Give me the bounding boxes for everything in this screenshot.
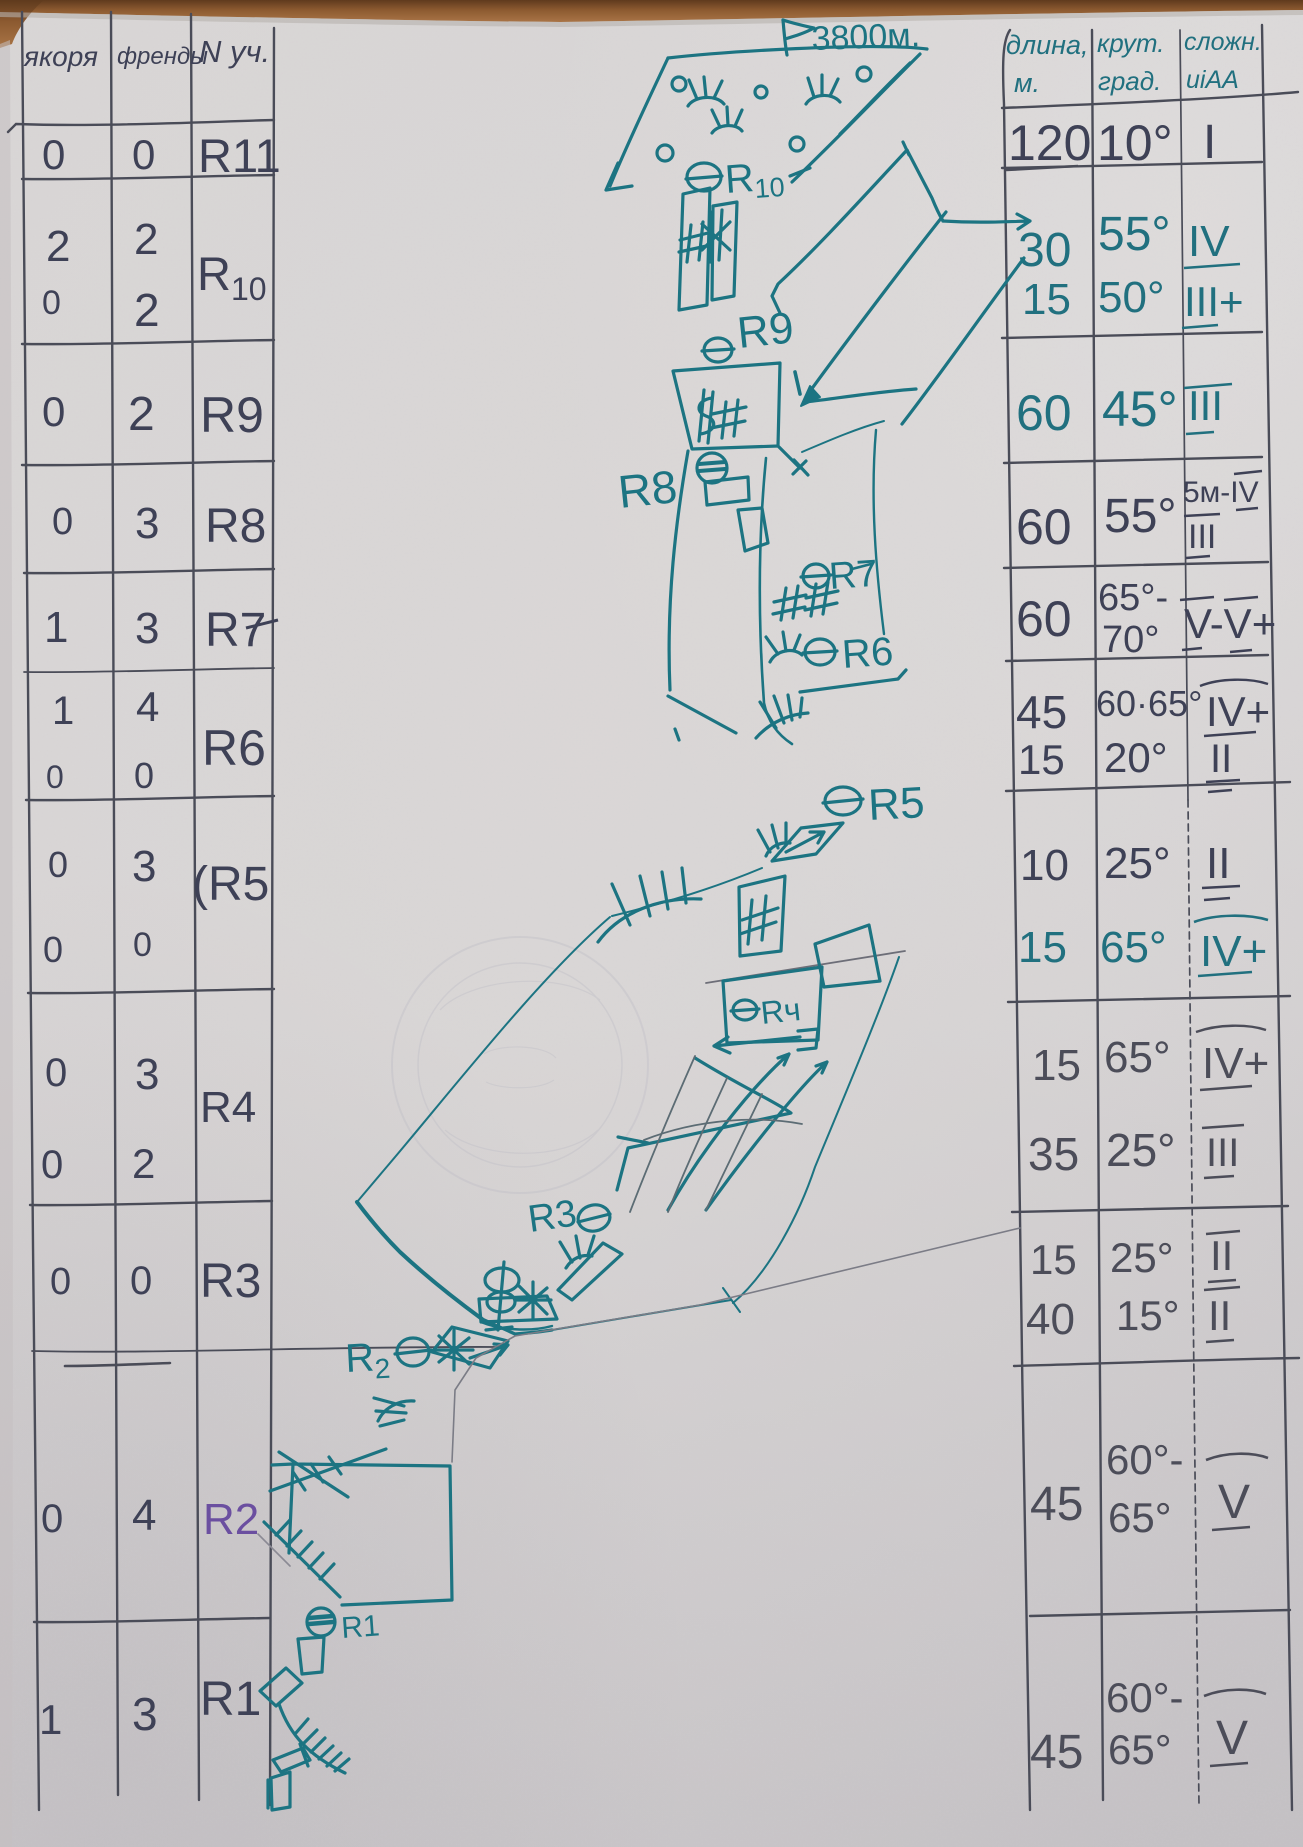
svg-text:крут.: крут.	[1097, 28, 1164, 58]
svg-text:II: II	[1210, 1232, 1233, 1279]
svg-text:IV: IV	[1188, 217, 1230, 266]
svg-text:60°-: 60°-	[1106, 1436, 1184, 1483]
svg-text:60: 60	[1016, 591, 1072, 647]
svg-text:3: 3	[132, 842, 156, 891]
svg-text:0: 0	[133, 926, 152, 964]
svg-text:длина,: длина,	[1006, 30, 1089, 60]
svg-text:R8: R8	[205, 500, 266, 553]
svg-text:0: 0	[43, 929, 63, 970]
svg-text:II: II	[1208, 1292, 1231, 1339]
svg-text:0: 0	[41, 1497, 63, 1541]
svg-text:R6: R6	[202, 720, 266, 776]
svg-text:2: 2	[134, 284, 160, 336]
svg-text:I: I	[1203, 116, 1216, 169]
svg-text:R2: R2	[203, 1495, 259, 1544]
svg-text:5м-IV: 5м-IV	[1183, 476, 1259, 509]
svg-text:25°: 25°	[1104, 839, 1171, 888]
svg-text:15: 15	[1022, 275, 1071, 324]
svg-text:60·65°: 60·65°	[1096, 683, 1202, 724]
svg-text:III: III	[1188, 382, 1223, 429]
svg-text:50°: 50°	[1098, 273, 1165, 322]
svg-text:0: 0	[50, 1261, 71, 1303]
svg-text:10°: 10°	[1097, 115, 1173, 171]
svg-text:15: 15	[1018, 923, 1067, 972]
svg-text:V: V	[1218, 1476, 1250, 1529]
svg-text:0: 0	[132, 131, 155, 178]
svg-text:60°-: 60°-	[1106, 1674, 1184, 1721]
svg-text:якоря: якоря	[23, 41, 98, 72]
svg-text:0: 0	[45, 1051, 67, 1095]
svg-text:40: 40	[1026, 1295, 1075, 1344]
svg-text:55°: 55°	[1098, 208, 1171, 261]
svg-text:0: 0	[42, 131, 65, 178]
svg-text:65°: 65°	[1100, 923, 1167, 972]
svg-text:3: 3	[135, 1050, 159, 1099]
svg-text:0: 0	[52, 501, 73, 543]
svg-text:35: 35	[1028, 1128, 1079, 1180]
svg-text:45°: 45°	[1102, 381, 1178, 437]
svg-text:70°: 70°	[1102, 619, 1159, 661]
svg-text:R1: R1	[340, 1609, 381, 1645]
svg-text:65°-: 65°-	[1098, 577, 1168, 619]
svg-text:0: 0	[41, 1143, 63, 1187]
svg-text:4: 4	[132, 1491, 156, 1540]
svg-text:45: 45	[1030, 1726, 1083, 1779]
svg-text:Rч: Rч	[759, 991, 802, 1031]
svg-text:III+: III+	[1184, 278, 1244, 325]
svg-text:25°: 25°	[1110, 1234, 1174, 1281]
svg-text:0: 0	[46, 759, 64, 795]
svg-text:R3: R3	[525, 1193, 579, 1241]
svg-text:25°: 25°	[1106, 1124, 1176, 1176]
svg-text:2: 2	[132, 1140, 155, 1187]
svg-text:0: 0	[42, 388, 65, 435]
svg-text:3: 3	[132, 1688, 158, 1740]
svg-text:(R5: (R5	[192, 858, 269, 911]
svg-text:15: 15	[1032, 1041, 1081, 1090]
svg-text:IV+: IV+	[1206, 688, 1270, 735]
svg-text:R3: R3	[200, 1255, 261, 1308]
svg-text:3: 3	[135, 604, 159, 653]
svg-text:м.: м.	[1014, 68, 1040, 98]
svg-text:45: 45	[1016, 686, 1067, 738]
svg-text:R8: R8	[616, 460, 680, 518]
svg-text:2: 2	[46, 222, 70, 271]
svg-text:55°: 55°	[1104, 490, 1177, 543]
svg-text:4: 4	[136, 683, 159, 730]
svg-text:R9: R9	[735, 303, 796, 358]
svg-text:град.: град.	[1098, 66, 1161, 96]
svg-text:1: 1	[39, 1696, 62, 1743]
svg-text:1: 1	[52, 689, 74, 733]
svg-text:R5: R5	[867, 778, 926, 830]
svg-text:15: 15	[1018, 736, 1065, 783]
svg-text:IV+: IV+	[1200, 927, 1267, 976]
svg-text:15°: 15°	[1116, 1292, 1180, 1339]
svg-text:R9: R9	[200, 387, 264, 443]
svg-text:0: 0	[42, 284, 61, 322]
svg-text:60: 60	[1016, 499, 1072, 555]
svg-text:0: 0	[130, 1259, 152, 1303]
svg-text:R11: R11	[198, 129, 281, 182]
svg-text:френды: френды	[117, 43, 208, 70]
svg-text:120: 120	[1008, 115, 1091, 171]
svg-text:10: 10	[1020, 841, 1069, 890]
svg-text:R7: R7	[205, 604, 266, 657]
svg-text:60: 60	[1016, 385, 1072, 441]
svg-text:1: 1	[44, 603, 68, 652]
svg-text:R4: R4	[200, 1083, 256, 1132]
svg-text:N уч.: N уч.	[199, 34, 270, 69]
svg-text:II: II	[1210, 737, 1232, 781]
svg-text:3800м.: 3800м.	[811, 16, 921, 58]
svg-text:65°: 65°	[1104, 1033, 1171, 1082]
svg-text:0: 0	[48, 844, 68, 885]
svg-text:сложн.: сложн.	[1184, 28, 1262, 56]
svg-text:III: III	[1206, 1131, 1239, 1175]
svg-text:R6: R6	[841, 630, 895, 677]
svg-text:2: 2	[134, 215, 158, 264]
svg-text:15: 15	[1030, 1236, 1077, 1283]
svg-text:45: 45	[1030, 1478, 1083, 1531]
svg-text:III: III	[1188, 518, 1216, 556]
svg-text:30: 30	[1018, 224, 1071, 277]
svg-text:IV+: IV+	[1202, 1039, 1269, 1088]
svg-text:2: 2	[128, 388, 155, 441]
svg-text:65°: 65°	[1108, 1726, 1172, 1773]
svg-text:R1: R1	[200, 1673, 261, 1726]
svg-text:20°: 20°	[1104, 734, 1168, 781]
svg-text:65°: 65°	[1108, 1494, 1172, 1541]
svg-text:II: II	[1206, 839, 1230, 888]
svg-text:V-V+: V-V+	[1184, 600, 1276, 647]
svg-text:uiAA: uiAA	[1186, 66, 1239, 94]
svg-text:3: 3	[135, 499, 159, 548]
svg-text:V: V	[1216, 1712, 1248, 1765]
svg-text:0: 0	[134, 755, 154, 796]
